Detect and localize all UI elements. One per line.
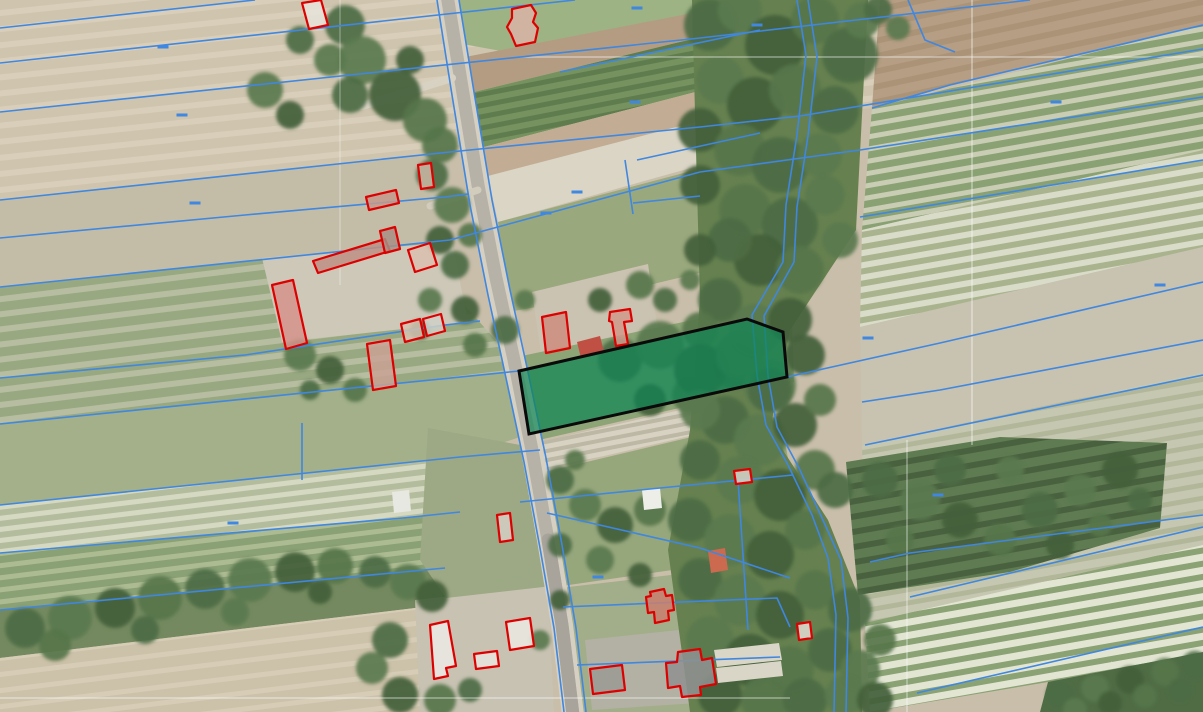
building-outline: [797, 622, 812, 640]
tree: [565, 450, 585, 470]
tree: [805, 175, 845, 215]
tree: [628, 563, 652, 587]
tree: [316, 356, 344, 384]
parcel-dash-marker: [630, 101, 641, 104]
parcel-dash-marker: [1051, 101, 1062, 104]
tree: [680, 165, 720, 205]
tree: [418, 288, 442, 312]
tree: [463, 333, 487, 357]
parcel-dash-marker: [572, 191, 583, 194]
tree: [221, 598, 249, 626]
building-outline: [590, 665, 625, 694]
parcel-dash-marker: [190, 202, 201, 205]
tree: [451, 296, 479, 324]
tree: [275, 552, 315, 592]
tree: [138, 576, 182, 620]
tree: [276, 101, 304, 129]
building-outline: [506, 618, 534, 650]
white-shed: [642, 488, 662, 510]
tree: [864, 624, 896, 656]
parcel-dash-marker: [752, 24, 763, 27]
tree: [314, 44, 346, 76]
tree: [942, 502, 978, 538]
building-outline: [401, 319, 424, 342]
building-outline: [418, 163, 434, 189]
tree: [680, 270, 700, 290]
tree: [886, 16, 910, 40]
tree: [684, 234, 716, 266]
tree: [39, 629, 71, 661]
parcel-dash-marker: [593, 576, 604, 579]
tree: [862, 462, 898, 498]
building-outline: [497, 513, 513, 542]
tree: [1088, 513, 1112, 537]
aerial-cadastral-map[interactable]: [0, 0, 1203, 712]
tree: [247, 72, 283, 108]
tree: [434, 187, 470, 223]
tree: [343, 378, 367, 402]
tree: [308, 580, 332, 604]
tree: [441, 251, 469, 279]
tree: [5, 608, 45, 648]
tree: [804, 384, 836, 416]
tree: [95, 588, 135, 628]
tree: [1102, 452, 1138, 488]
tree: [886, 526, 914, 554]
tree: [1064, 474, 1096, 506]
white-panels: [392, 490, 411, 513]
tree: [1128, 488, 1152, 512]
tree: [422, 127, 458, 163]
tree: [785, 510, 825, 550]
tree: [356, 652, 388, 684]
tree: [934, 454, 966, 486]
parcel-dash-marker: [933, 494, 944, 497]
tree: [588, 288, 612, 312]
tree: [653, 288, 677, 312]
building-outline: [367, 340, 396, 390]
tree: [900, 480, 940, 520]
building-outline: [380, 227, 400, 253]
parcel-dash-marker: [541, 212, 552, 215]
tree: [626, 271, 654, 299]
tree: [822, 222, 858, 258]
tree: [228, 558, 272, 602]
parcel-dash-marker: [228, 522, 239, 525]
tree: [515, 290, 535, 310]
building-outline: [734, 469, 752, 484]
tree: [785, 335, 825, 375]
tree: [586, 546, 614, 574]
building-outline: [542, 312, 570, 353]
tree: [1168, 678, 1192, 702]
tree: [416, 580, 448, 612]
building-outline: [474, 651, 499, 669]
parcel-dash-marker: [632, 7, 643, 10]
tree: [680, 440, 720, 480]
parcel-dash-marker: [177, 114, 188, 117]
tree: [372, 622, 408, 658]
tree: [131, 616, 159, 644]
tree: [300, 380, 320, 400]
tree: [817, 472, 853, 508]
parcel-dash-marker: [158, 46, 169, 49]
tree: [1022, 492, 1058, 528]
tree: [1133, 684, 1157, 708]
tree: [332, 77, 368, 113]
tree: [359, 556, 391, 588]
parcel-dash-marker: [863, 337, 874, 340]
map-viewport[interactable]: [0, 0, 1203, 712]
tree: [752, 137, 808, 193]
tree: [382, 677, 418, 712]
tree: [996, 456, 1024, 484]
building-outline: [423, 314, 445, 336]
parcel-dash-marker: [1155, 284, 1166, 287]
